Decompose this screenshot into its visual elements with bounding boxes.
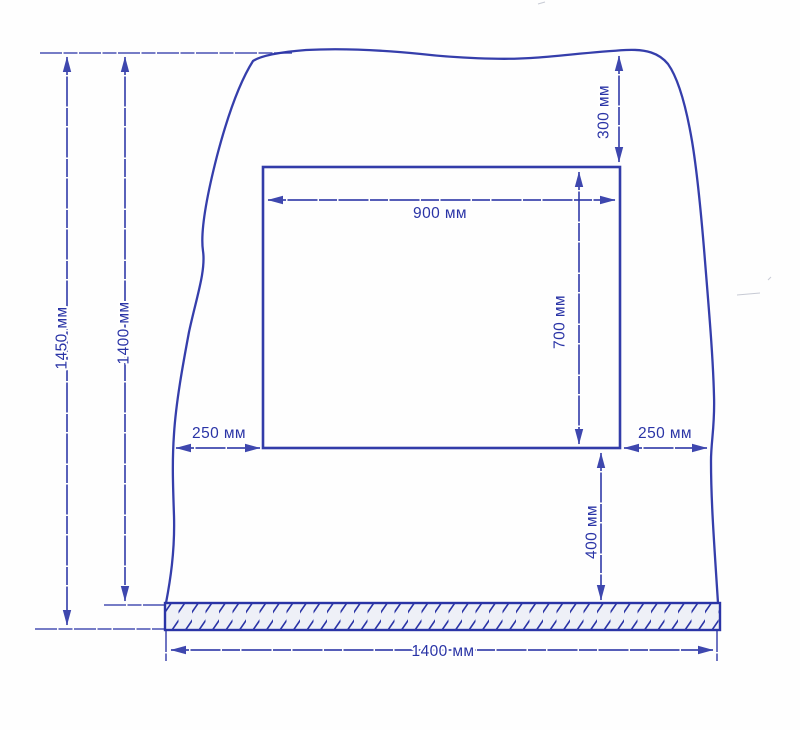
- dim-height-above-floor: 1400 мм: [116, 57, 133, 601]
- dim-label-opening-height: 700 мм: [552, 295, 569, 349]
- dim-label-top-clearance: 300 мм: [596, 85, 613, 139]
- dim-total-height: 1450 мм: [54, 57, 71, 625]
- dim-label-wall-width: 1400 мм: [412, 643, 475, 660]
- dim-label-right-clearance: 250 мм: [638, 425, 692, 442]
- dim-opening-width: 900 мм: [268, 200, 615, 222]
- dim-bottom-clearance: 400 мм: [584, 453, 602, 600]
- dim-label-opening-width: 900 мм: [413, 205, 467, 222]
- dim-label-bottom-clearance: 400 мм: [584, 505, 601, 559]
- dim-right-clearance: 250 мм: [624, 425, 707, 448]
- dim-label-total-height: 1450 мм: [54, 307, 71, 370]
- extension-lines: [35, 53, 717, 661]
- dim-top-clearance: 300 мм: [596, 56, 620, 162]
- dim-wall-width: 1400 мм: [171, 643, 713, 660]
- dim-left-clearance: 250 мм: [176, 425, 260, 448]
- dim-label-left-clearance: 250 мм: [192, 425, 246, 442]
- scan-artifacts: [538, 2, 771, 295]
- dim-opening-height: 700 мм: [552, 172, 580, 444]
- dim-label-height-above-floor: 1400 мм: [116, 302, 133, 365]
- drawing-svg: 1450 мм 1400 мм 300 мм 900 мм 700 мм 250…: [0, 0, 800, 730]
- wall-outline: [166, 49, 718, 603]
- scanned-technical-drawing: 1450 мм 1400 мм 300 мм 900 мм 700 мм 250…: [0, 0, 800, 730]
- floor-band: [165, 603, 720, 630]
